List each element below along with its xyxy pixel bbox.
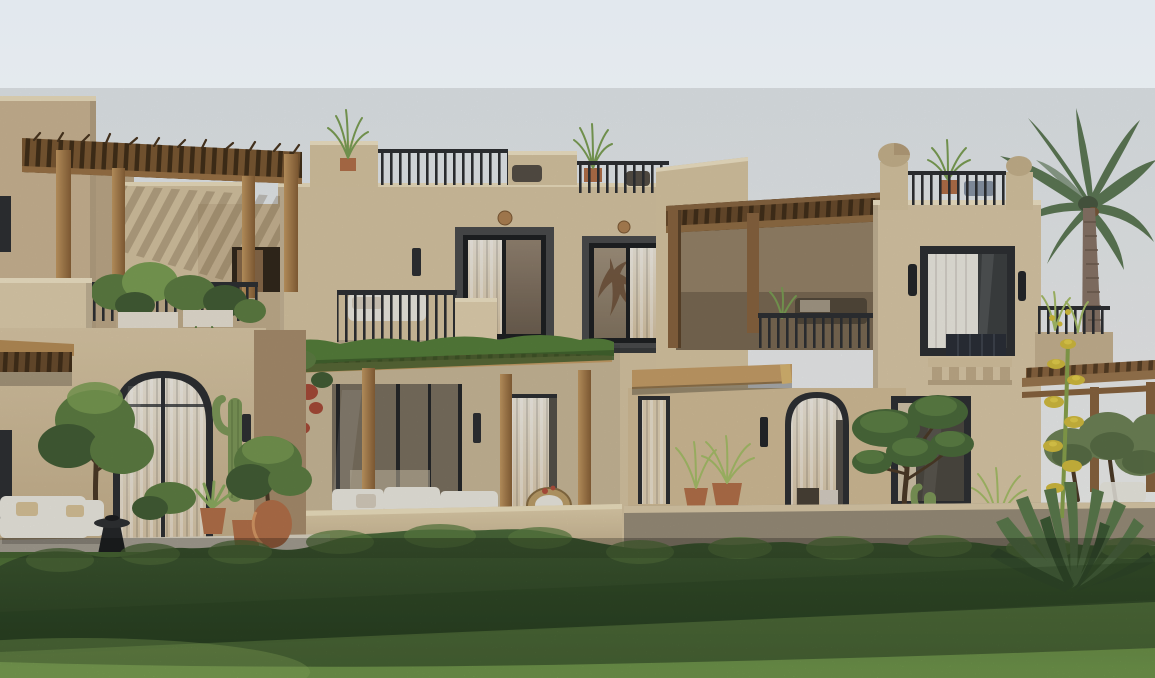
texture-overlays (0, 88, 1155, 678)
architectural-render (0, 0, 1155, 678)
villa-scene (0, 0, 1155, 678)
